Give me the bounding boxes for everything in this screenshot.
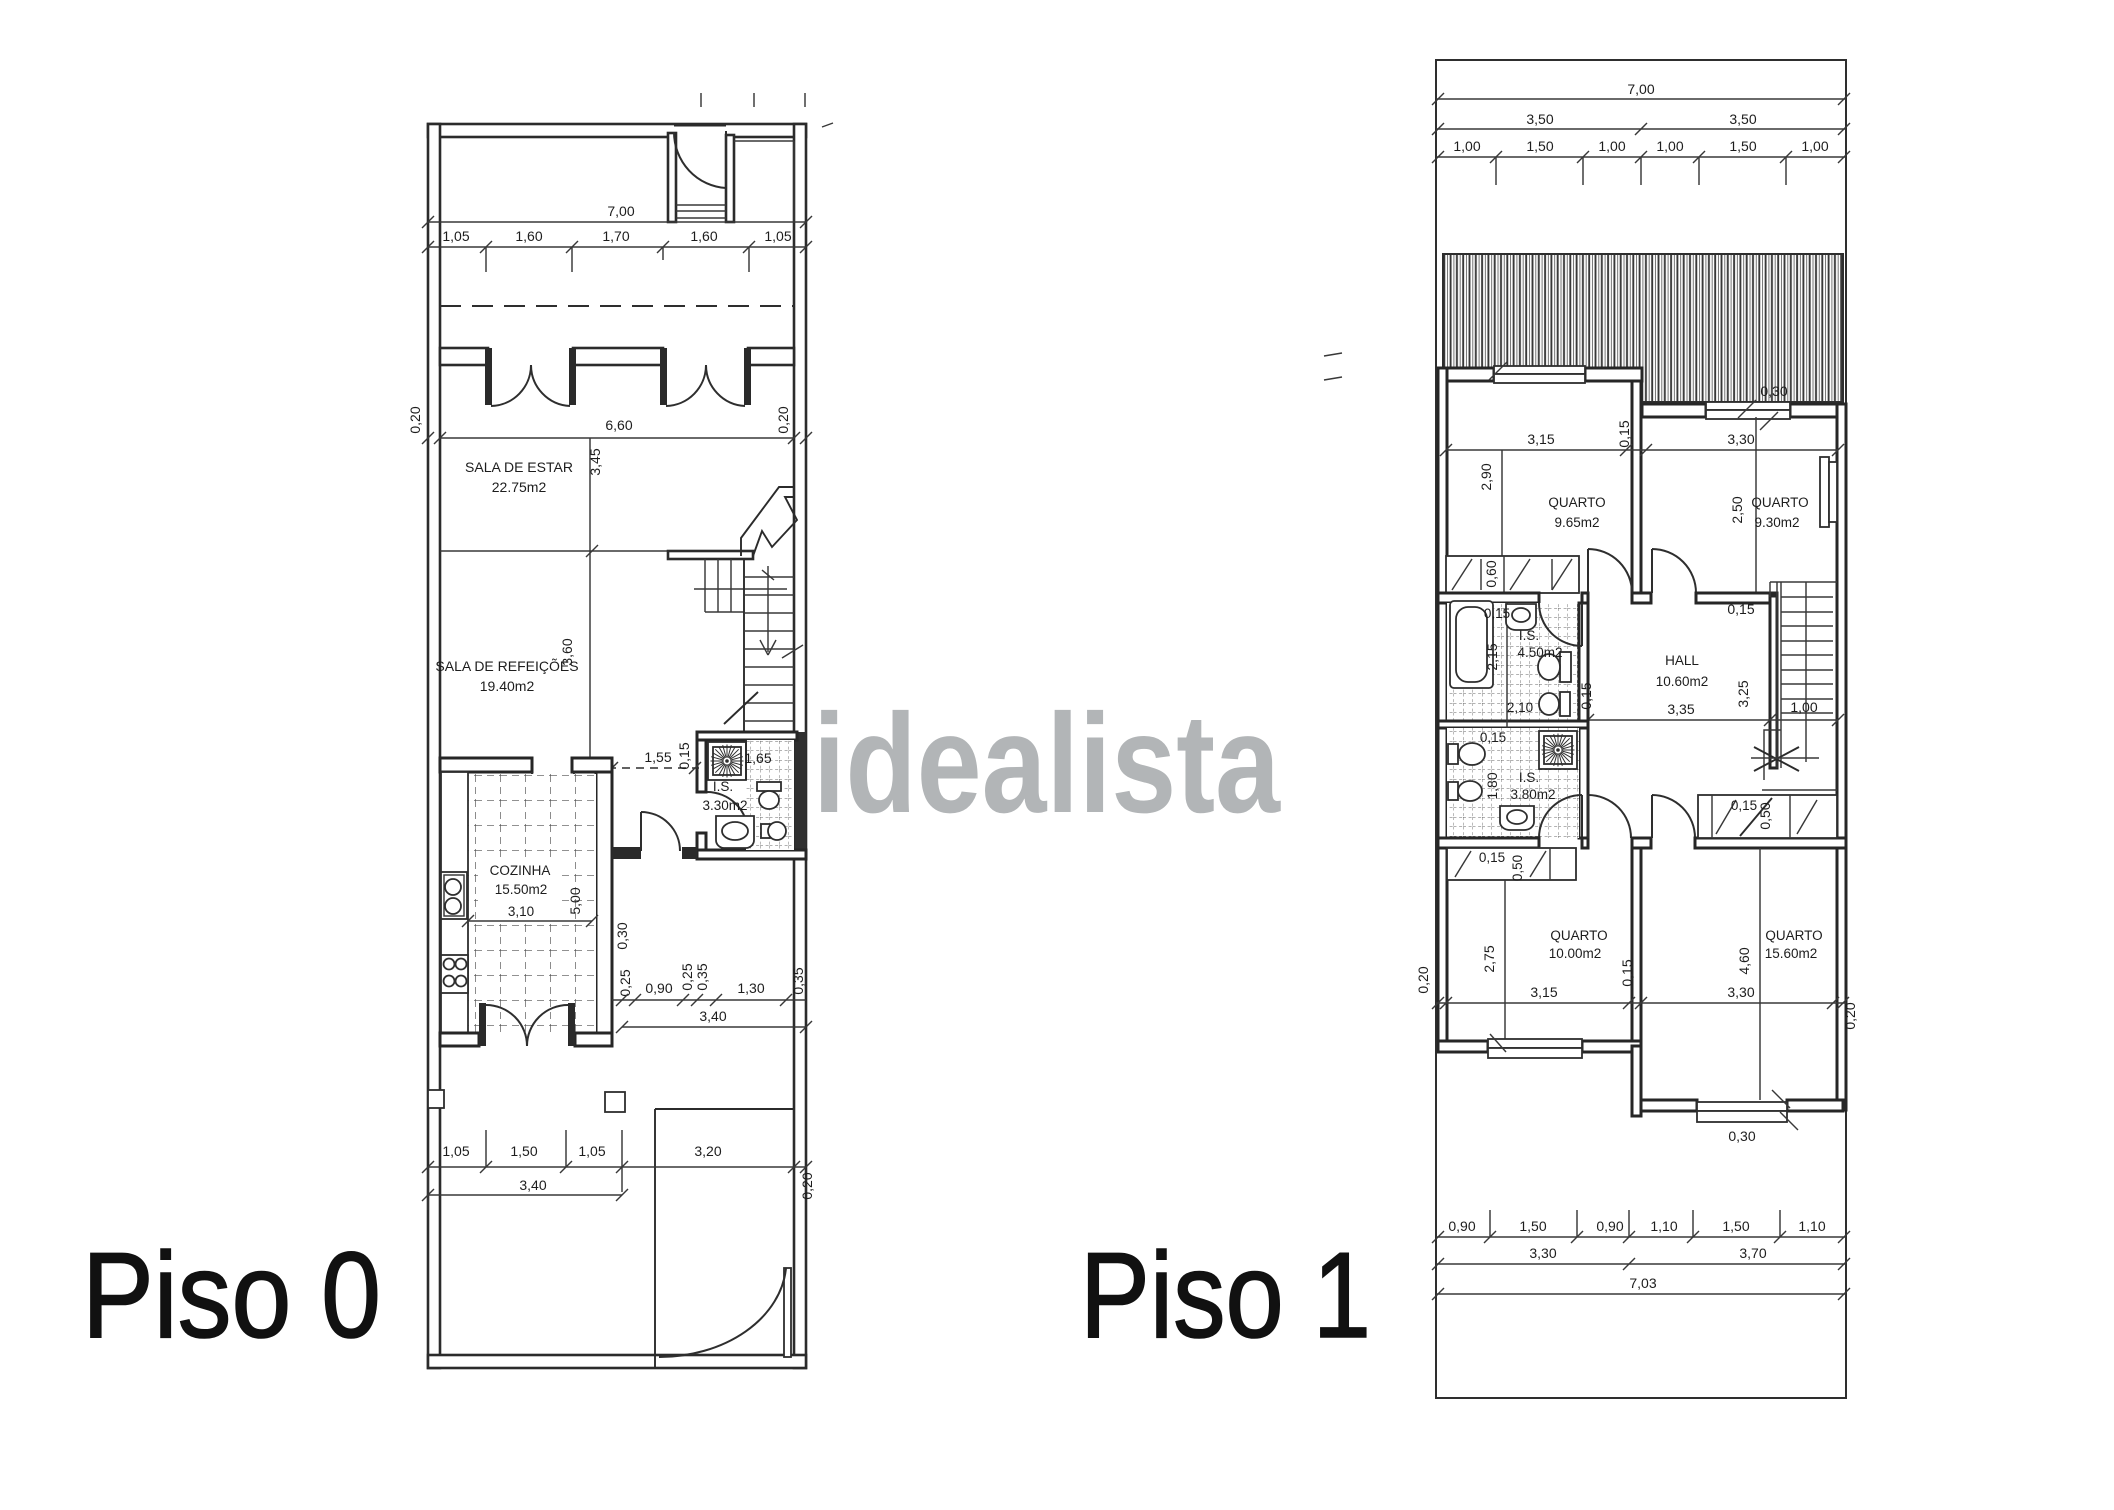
svg-text:0,15: 0,15 bbox=[1619, 959, 1635, 986]
svg-text:idealista: idealista bbox=[813, 684, 1281, 842]
svg-text:1,10: 1,10 bbox=[1650, 1218, 1677, 1234]
svg-text:3,15: 3,15 bbox=[1527, 431, 1554, 447]
svg-text:0,20: 0,20 bbox=[407, 406, 423, 433]
svg-text:5,00: 5,00 bbox=[567, 887, 583, 914]
svg-text:0,30: 0,30 bbox=[1728, 1128, 1755, 1144]
svg-text:0,20: 0,20 bbox=[1842, 1002, 1858, 1029]
svg-text:0,20: 0,20 bbox=[775, 406, 791, 433]
svg-text:2,75: 2,75 bbox=[1481, 945, 1497, 972]
svg-text:9.30m2: 9.30m2 bbox=[1754, 515, 1799, 530]
svg-text:15.50m2: 15.50m2 bbox=[495, 882, 548, 897]
svg-text:1,55: 1,55 bbox=[644, 749, 671, 765]
svg-text:0,30: 0,30 bbox=[614, 922, 630, 949]
svg-text:1,30: 1,30 bbox=[737, 980, 764, 996]
svg-text:4,60: 4,60 bbox=[1736, 947, 1752, 974]
svg-text:3,40: 3,40 bbox=[699, 1008, 726, 1024]
svg-text:0,15: 0,15 bbox=[1616, 420, 1632, 447]
svg-text:7,00: 7,00 bbox=[607, 203, 634, 219]
svg-text:3,50: 3,50 bbox=[1526, 111, 1553, 127]
svg-text:2,10: 2,10 bbox=[1507, 700, 1533, 715]
svg-text:SALA DE ESTAR: SALA DE ESTAR bbox=[465, 459, 573, 475]
svg-text:0,20: 0,20 bbox=[799, 1172, 815, 1199]
svg-text:3,15: 3,15 bbox=[1530, 984, 1557, 1000]
svg-text:3,30: 3,30 bbox=[1727, 984, 1754, 1000]
svg-text:I.S.: I.S. bbox=[1519, 770, 1539, 785]
svg-text:COZINHA: COZINHA bbox=[490, 863, 551, 878]
svg-text:1,50: 1,50 bbox=[1519, 1218, 1546, 1234]
svg-text:0,15: 0,15 bbox=[1479, 850, 1505, 865]
svg-text:15.60m2: 15.60m2 bbox=[1765, 946, 1818, 961]
svg-text:6,60: 6,60 bbox=[605, 417, 632, 433]
svg-text:1,50: 1,50 bbox=[510, 1143, 537, 1159]
svg-text:QUARTO: QUARTO bbox=[1548, 495, 1605, 510]
svg-text:1,10: 1,10 bbox=[1798, 1218, 1825, 1234]
svg-text:HALL: HALL bbox=[1665, 653, 1699, 668]
svg-text:0,15: 0,15 bbox=[1578, 682, 1594, 709]
svg-text:1,00: 1,00 bbox=[1656, 138, 1683, 154]
svg-text:I.S.: I.S. bbox=[1519, 628, 1539, 643]
svg-text:3,50: 3,50 bbox=[1729, 111, 1756, 127]
svg-text:3,70: 3,70 bbox=[1739, 1245, 1766, 1261]
svg-text:0,15: 0,15 bbox=[1480, 730, 1506, 745]
svg-text:0,30: 0,30 bbox=[1760, 383, 1787, 399]
svg-text:3.30m2: 3.30m2 bbox=[702, 798, 747, 813]
svg-text:0,50: 0,50 bbox=[1510, 855, 1525, 881]
svg-text:3,25: 3,25 bbox=[1735, 680, 1751, 707]
svg-text:QUARTO: QUARTO bbox=[1550, 928, 1607, 943]
svg-text:0,20: 0,20 bbox=[1415, 966, 1431, 993]
svg-text:3,20: 3,20 bbox=[694, 1143, 721, 1159]
svg-text:2,90: 2,90 bbox=[1478, 463, 1494, 490]
svg-text:0,90: 0,90 bbox=[1596, 1218, 1623, 1234]
svg-text:1,00: 1,00 bbox=[1598, 138, 1625, 154]
svg-text:1,00: 1,00 bbox=[1790, 699, 1817, 715]
svg-text:22.75m2: 22.75m2 bbox=[492, 479, 547, 495]
svg-text:1,50: 1,50 bbox=[1722, 1218, 1749, 1234]
svg-text:0,35: 0,35 bbox=[694, 963, 710, 990]
svg-text:0,35: 0,35 bbox=[790, 967, 806, 994]
svg-text:2,50: 2,50 bbox=[1729, 496, 1745, 523]
svg-text:1,00: 1,00 bbox=[1801, 138, 1828, 154]
svg-text:1,60: 1,60 bbox=[690, 228, 717, 244]
svg-text:10.00m2: 10.00m2 bbox=[1549, 946, 1602, 961]
svg-text:Piso 1: Piso 1 bbox=[1080, 1227, 1371, 1363]
svg-text:QUARTO: QUARTO bbox=[1751, 495, 1808, 510]
svg-text:4.50m2: 4.50m2 bbox=[1517, 645, 1562, 660]
svg-text:0,15: 0,15 bbox=[1484, 606, 1510, 621]
svg-text:0,25: 0,25 bbox=[679, 963, 695, 990]
svg-text:7,00: 7,00 bbox=[1627, 81, 1654, 97]
svg-text:SALA DE REFEIÇÕES: SALA DE REFEIÇÕES bbox=[435, 658, 578, 674]
svg-text:3,40: 3,40 bbox=[519, 1177, 546, 1193]
svg-text:1,05: 1,05 bbox=[442, 1143, 469, 1159]
svg-text:I.S.: I.S. bbox=[713, 779, 733, 794]
svg-text:0,25: 0,25 bbox=[617, 969, 633, 996]
svg-text:1,00: 1,00 bbox=[1453, 138, 1480, 154]
svg-text:19.40m2: 19.40m2 bbox=[480, 678, 535, 694]
svg-text:3,60: 3,60 bbox=[559, 638, 575, 665]
svg-text:1,05: 1,05 bbox=[442, 228, 469, 244]
svg-text:1,80: 1,80 bbox=[1484, 772, 1500, 799]
svg-text:3,10: 3,10 bbox=[508, 904, 534, 919]
svg-text:1,60: 1,60 bbox=[515, 228, 542, 244]
svg-text:9.65m2: 9.65m2 bbox=[1554, 515, 1599, 530]
svg-text:1,50: 1,50 bbox=[1526, 138, 1553, 154]
svg-text:1,65: 1,65 bbox=[744, 750, 771, 766]
svg-text:Piso 0: Piso 0 bbox=[82, 1227, 381, 1363]
svg-text:1,50: 1,50 bbox=[1729, 138, 1756, 154]
svg-text:1,05: 1,05 bbox=[578, 1143, 605, 1159]
svg-text:10.60m2: 10.60m2 bbox=[1656, 674, 1709, 689]
svg-text:2,15: 2,15 bbox=[1484, 643, 1500, 670]
svg-text:0,90: 0,90 bbox=[645, 980, 672, 996]
svg-text:0,90: 0,90 bbox=[1448, 1218, 1475, 1234]
svg-text:3.80m2: 3.80m2 bbox=[1510, 787, 1555, 802]
svg-text:1,70: 1,70 bbox=[602, 228, 629, 244]
svg-text:0,15: 0,15 bbox=[1731, 798, 1757, 813]
svg-text:QUARTO: QUARTO bbox=[1765, 928, 1822, 943]
svg-text:0,15: 0,15 bbox=[1727, 601, 1754, 617]
svg-text:0,50: 0,50 bbox=[1757, 802, 1773, 829]
svg-text:7,03: 7,03 bbox=[1629, 1275, 1656, 1291]
svg-text:3,30: 3,30 bbox=[1529, 1245, 1556, 1261]
svg-text:1,05: 1,05 bbox=[764, 228, 791, 244]
svg-text:3,35: 3,35 bbox=[1667, 701, 1694, 717]
svg-text:0,15: 0,15 bbox=[676, 742, 692, 769]
svg-text:3,30: 3,30 bbox=[1727, 431, 1754, 447]
svg-text:0,60: 0,60 bbox=[1483, 560, 1499, 587]
